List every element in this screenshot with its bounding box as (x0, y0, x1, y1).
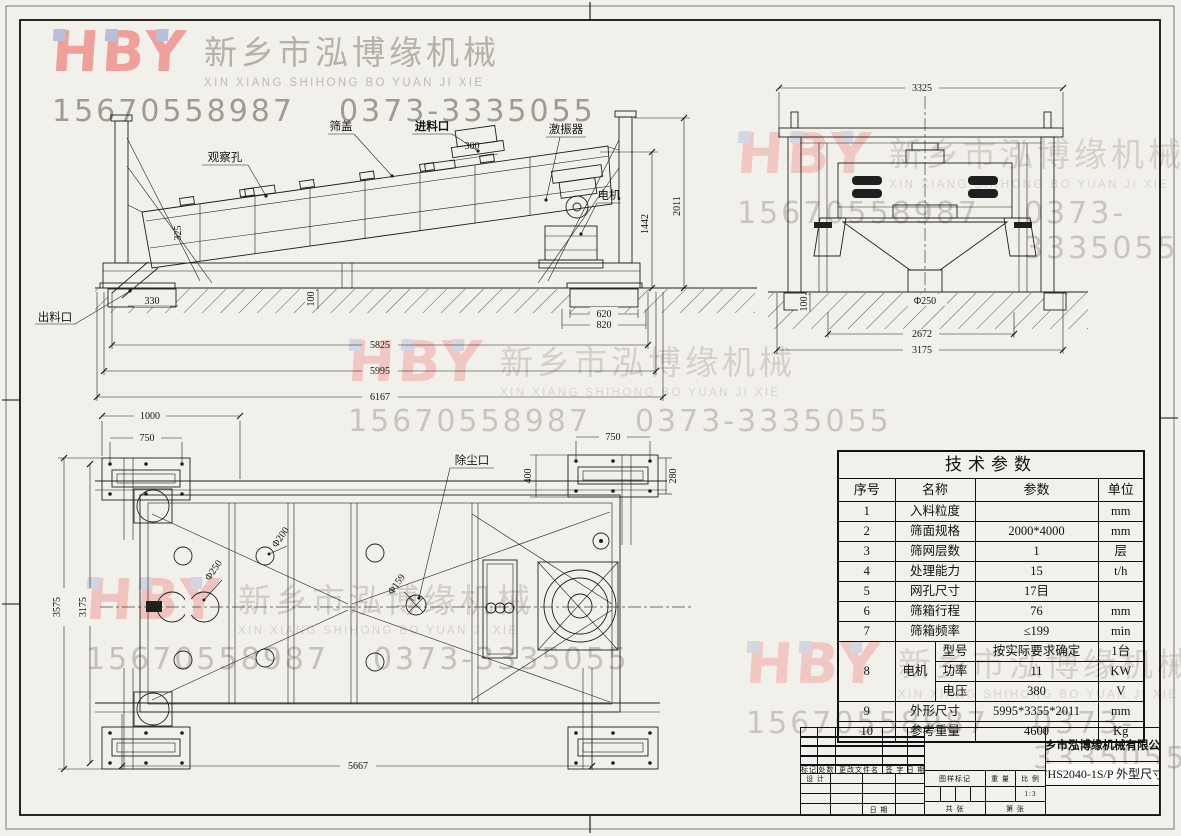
top-view: 1000 750 750 400 280 3575 3175 (52, 411, 692, 772)
dim-3575: 3575 (52, 597, 63, 617)
param-row: 3 筛网层数 1 层 (838, 542, 1144, 562)
side-label-feed-inlet: 进料口 (415, 119, 450, 133)
dim-1000: 1000 (140, 411, 160, 422)
dim-750-left: 750 (140, 433, 155, 444)
param-row: 5 网孔尺寸 17目 (838, 582, 1144, 602)
dim-300: 300 (465, 141, 480, 152)
mount-pad-top-right (568, 455, 658, 497)
side-label-discharge-outlet: 出料口 (38, 310, 73, 324)
col-header-unit: 单位 (1098, 479, 1144, 502)
dim-2672: 2672 (912, 329, 932, 340)
tech-params-table: 技术参数 序号 名称 参数 单位 1 入料粒度 mm 2 筛面规格 2000*4… (837, 450, 1145, 743)
mount-pad-top-left (102, 458, 190, 500)
title-block-border (800, 727, 1160, 816)
dim-5995: 5995 (370, 366, 390, 377)
table-title-row: 技术参数 (838, 451, 1144, 479)
param-row-motor: 8 电机 型号 按实际要求确定 1台 (838, 642, 1144, 662)
dim-330: 330 (145, 296, 160, 307)
dim-280: 280 (668, 469, 679, 484)
param-row: 2 筛面规格 2000*4000 mm (838, 522, 1144, 542)
dim-phi250-top: Φ250 (203, 558, 225, 583)
param-row: 1 入料粒度 mm (838, 502, 1144, 522)
dim-100-side: 100 (306, 292, 317, 307)
dim-750-right: 750 (606, 432, 621, 443)
dim-325: 325 (173, 226, 184, 241)
param-row: 9 外形尺寸 5995*3355*2011 mm (838, 702, 1144, 722)
dim-1442: 1442 (640, 214, 651, 234)
top-label-dust-port: 除尘口 (455, 453, 490, 467)
param-row: 6 筛箱行程 76 mm (838, 602, 1144, 622)
dim-400: 400 (523, 469, 534, 484)
drawing-sheet: HBY 新乡市泓博缘机械 XIN XIANG SHIHONG BO YUAN J… (0, 0, 1181, 836)
param-row: 7 筛箱频率 ≤199 min (838, 622, 1144, 642)
dim-phi200: Φ200 (270, 525, 292, 550)
param-row: 4 处理能力 15 t/h (838, 562, 1144, 582)
mount-pad-bottom-right (568, 727, 658, 769)
side-label-exciter: 激振器 (549, 122, 584, 136)
dim-phi159: Φ159 (386, 572, 408, 597)
side-label-motor: 电机 (598, 188, 621, 202)
dim-5825: 5825 (370, 340, 390, 351)
table-header-row: 序号 名称 参数 单位 (838, 479, 1144, 502)
col-header-name: 名称 (895, 479, 975, 502)
dim-820: 820 (597, 320, 612, 331)
dim-3175-end: 3175 (912, 345, 932, 356)
title-block: 标记 处数 更改文件名 签 字 日 期 设 计 日 期 图样标记 重 量 比 例… (800, 727, 1160, 816)
end-view: 3325 (768, 83, 1088, 356)
dim-6167: 6167 (370, 392, 390, 403)
dim-3325: 3325 (912, 83, 932, 94)
side-view: 观察孔 筛盖 进料口 激振器 电机 出料口 300 325 (35, 111, 757, 403)
dim-phi250-end: Φ250 (914, 296, 936, 307)
side-label-screen-cover: 筛盖 (330, 119, 353, 133)
mount-pad-bottom-left (102, 727, 190, 769)
table-title: 技术参数 (838, 451, 1144, 479)
dim-5667: 5667 (348, 761, 368, 772)
dim-620: 620 (597, 309, 612, 320)
col-header-value: 参数 (975, 479, 1098, 502)
col-header-no: 序号 (838, 479, 895, 502)
dim-3175-top: 3175 (78, 597, 89, 617)
dim-2011: 2011 (672, 196, 683, 216)
side-label-observe-hole: 观察孔 (208, 150, 243, 164)
dim-100-end: 100 (799, 297, 810, 312)
